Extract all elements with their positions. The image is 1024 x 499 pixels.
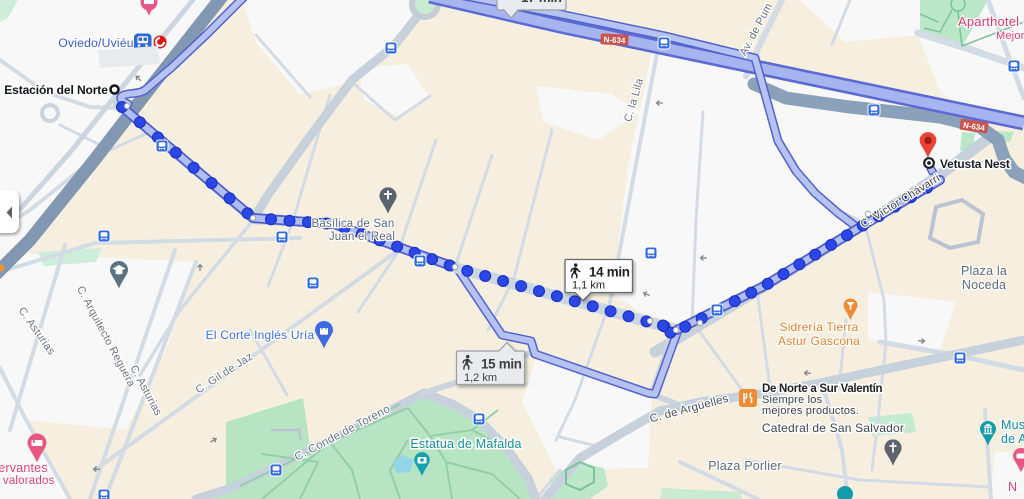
svg-text:Plaza Porlier: Plaza Porlier	[708, 459, 781, 473]
svg-text:Noceda: Noceda	[962, 278, 1006, 292]
svg-text:mejores productos.: mejores productos.	[762, 405, 859, 417]
svg-text:17 min: 17 min	[521, 0, 562, 5]
svg-text:Estatua de Mafalda: Estatua de Mafalda	[410, 437, 521, 451]
svg-text:Basílica de San: Basílica de San	[312, 218, 395, 230]
svg-text:Mejor v: Mejor v	[996, 30, 1024, 42]
svg-text:Plaza la: Plaza la	[961, 264, 1007, 278]
svg-text:15 min: 15 min	[481, 357, 522, 372]
svg-text:14 min: 14 min	[589, 265, 630, 280]
svg-text:1,1 km: 1,1 km	[572, 280, 605, 292]
svg-text:r valorados: r valorados	[0, 475, 55, 487]
svg-text:N: N	[1008, 480, 1017, 494]
svg-text:Astur Gascona: Astur Gascona	[778, 334, 860, 348]
svg-text:El Corte Inglés Uría: El Corte Inglés Uría	[206, 328, 315, 342]
svg-text:Sidrería Tierra: Sidrería Tierra	[779, 320, 858, 334]
svg-text:Catedral de San Salvador: Catedral de San Salvador	[762, 421, 904, 435]
svg-text:Mus: Mus	[1001, 418, 1024, 432]
svg-text:de A: de A	[1001, 432, 1024, 446]
svg-text:N-634: N-634	[603, 35, 626, 45]
svg-text:Juan el Real: Juan el Real	[329, 231, 395, 243]
svg-text:1,2 km: 1,2 km	[464, 372, 497, 384]
svg-text:Aparthotel O: Aparthotel O	[958, 14, 1024, 29]
svg-text:Vetusta Nest: Vetusta Nest	[940, 157, 1010, 171]
svg-text:Oviedo/Uviéu: Oviedo/Uviéu	[58, 36, 134, 50]
svg-text:Estación del Norte: Estación del Norte	[4, 83, 108, 97]
svg-text:ervantes: ervantes	[0, 461, 48, 475]
